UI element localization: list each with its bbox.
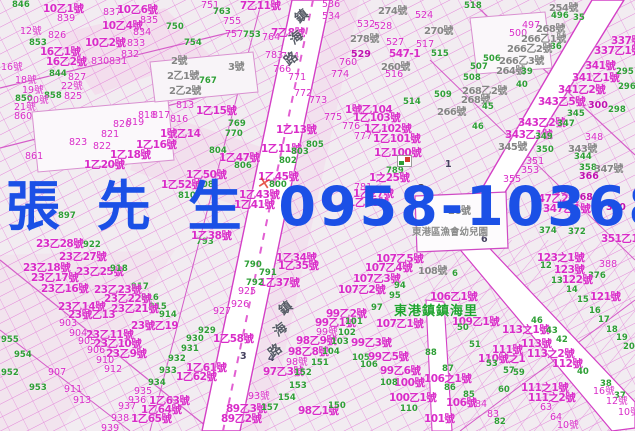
parcel-label: 536 — [322, 0, 340, 10]
parcel-label: 101號 — [424, 414, 454, 425]
village-label: 東港鎮鎮海里 — [394, 300, 478, 319]
parcel-label: 773 — [309, 96, 327, 106]
parcel-label: 113之1號 — [502, 325, 549, 336]
parcel-label: 341乙1號 — [572, 73, 619, 84]
parcel-label: 825 — [64, 92, 82, 102]
parcel-label: 1乙103號 — [353, 113, 400, 124]
parcel-label: 266乙2號 — [507, 45, 552, 55]
parcel-label: 2號 — [171, 57, 187, 67]
parcel-label: 1乙101號 — [373, 134, 420, 145]
parcel-label: 529 — [351, 50, 371, 60]
parcel-label: 345 — [567, 110, 585, 119]
parcel-label: 831 — [109, 57, 127, 67]
parcel-label: 3 — [240, 352, 247, 362]
parcel-label: 344 — [574, 153, 592, 162]
parcel-label: 341乙2號 — [558, 85, 605, 96]
parcel-label: 496 — [551, 12, 569, 21]
parcel-label: 59 — [513, 369, 525, 378]
parcel-label: 775 — [324, 113, 342, 123]
parcel-label: 754 — [184, 39, 202, 48]
parcel-label: 914 — [159, 311, 177, 320]
parcel-label: 771 — [288, 73, 306, 83]
parcel-label: 107乙2號 — [338, 285, 385, 296]
parcel-label: 42 — [556, 336, 568, 345]
parcel-label: 14 — [566, 286, 578, 295]
parcel-label: 296 — [618, 83, 635, 92]
parcel-label: 933 — [159, 367, 177, 376]
parcel-label: 10乙2號 — [85, 38, 125, 49]
parcel-label: 266號 — [437, 108, 466, 118]
parcel-label: 1乙62號 — [176, 372, 216, 383]
parcel-label: 6 — [452, 270, 458, 279]
parcel-label: 99乙3號 — [351, 338, 391, 349]
parcel-label: 757 — [225, 30, 243, 40]
parcel-label: 10乙6號 — [117, 5, 157, 16]
parcel-label: 939 — [101, 424, 119, 431]
parcel-label: 767 — [199, 77, 217, 86]
parcel-label: 99乙6號 — [380, 366, 420, 377]
parcel-label: 518 — [464, 2, 482, 11]
parcel-label: 907 — [48, 368, 66, 378]
parcel-label: 509 — [434, 91, 452, 100]
parcel-label: 844 — [49, 70, 67, 79]
parcel-label: 952 — [1, 369, 19, 378]
parcel-label: 93號 — [248, 392, 270, 402]
parcel-label: 337乙1號 — [594, 46, 635, 57]
parcel-label: 108 — [380, 379, 398, 388]
parcel-label: 122號 — [562, 275, 592, 286]
parcel-label: 300 — [588, 101, 608, 111]
parcel-label: 1號乙14 — [160, 129, 200, 140]
parcel-label: 157 — [261, 404, 279, 413]
parcel-label: 774 — [331, 70, 349, 80]
parcel-label: 89乙2號 — [221, 414, 261, 425]
parcel-label: 1乙20號 — [84, 160, 124, 171]
parcel-label: 108號 — [418, 267, 447, 277]
parcel-label: 20 — [623, 343, 635, 352]
parcel-label: 10號 — [618, 408, 635, 418]
parcel-label: 514 — [403, 98, 421, 107]
parcel-label: 770 — [225, 130, 243, 139]
parcel-label: 930 — [186, 335, 204, 344]
parcel-label: 1乙15號 — [196, 106, 236, 117]
parcel-label: 12號 — [606, 397, 628, 407]
parcel-label: 1乙58號 — [213, 334, 253, 345]
parcel-label: 341號 — [585, 61, 615, 72]
parcel-label: 104 — [322, 348, 340, 357]
parcel-label: 53 — [486, 360, 498, 369]
parcel-label: 111號 — [492, 345, 522, 356]
parcel-label: 107乙1號 — [376, 319, 423, 330]
parcel-label: 88 — [425, 349, 437, 358]
parcel-label: 816 — [170, 115, 188, 125]
parcel-label: 835 — [140, 16, 158, 26]
parcel-label: 922 — [83, 241, 101, 250]
parcel-label: 23乙27號 — [59, 252, 106, 263]
phone-overlay: 張 先 生 0958-103680 — [6, 180, 635, 234]
parcel-label: 823 — [69, 138, 87, 148]
parcel-label: 82 — [494, 418, 506, 427]
parcel-label: 764 — [262, 33, 280, 43]
parcel-label: 2乙2號 — [169, 87, 201, 97]
parcel-label: 270號 — [424, 27, 453, 37]
parcel-label: 97 — [371, 304, 383, 313]
parcel-label: 15 — [577, 296, 589, 305]
parcel-label: 17 — [598, 316, 610, 325]
parcel-label: 51 — [469, 341, 481, 350]
parcel-label: 84 — [475, 400, 487, 410]
parcel-label: 106 — [360, 361, 378, 370]
parcel-label: 821 — [101, 130, 119, 140]
parcel-label: 121號 — [590, 292, 620, 303]
parcel-label: 12 — [540, 262, 552, 271]
parcel-label: 911 — [64, 385, 82, 395]
parcel-label: 151 — [311, 359, 329, 368]
parcel-label: 350 — [536, 146, 554, 155]
parcel-label: 931 — [181, 345, 199, 354]
parcel-label: 298 — [608, 106, 626, 115]
parcel-label: 839 — [57, 14, 75, 24]
parcel-label: 349 — [535, 133, 553, 142]
parcel-label: 932 — [168, 355, 186, 364]
parcel-label: 12號 — [20, 27, 42, 37]
parcel-label: 150 — [328, 402, 346, 411]
parcel-label: 153 — [289, 382, 307, 391]
parcel-label: 813 — [176, 101, 194, 111]
parcel-label: 86 — [444, 384, 456, 393]
parcel-label: 1乙13號 — [276, 125, 316, 136]
parcel-label: 101 — [345, 318, 363, 327]
parcel-label: 152 — [294, 369, 312, 378]
parcel-label: 1乙47號 — [219, 153, 259, 164]
parcel-label: 45 — [482, 103, 494, 112]
parcel-label: 16乙2號 — [46, 57, 86, 68]
parcel-label: 274號 — [378, 7, 407, 17]
parcel-label: 110 — [400, 405, 418, 414]
parcel-label: 23號乙19 — [131, 321, 178, 332]
parcel-label: 547-1 — [389, 49, 420, 60]
parcel-label: 3號 — [228, 63, 244, 73]
parcel-label: 1乙65號 — [131, 414, 171, 425]
parcel-label: 927 — [213, 307, 231, 317]
parcel-label: 7乙11號 — [240, 1, 280, 12]
parcel-label: 2乙1號 — [167, 72, 199, 82]
parcel-label: 926 — [231, 300, 249, 310]
parcel-label: 23乙21號 — [111, 304, 158, 315]
parcel-label: 534 — [322, 12, 340, 22]
parcel-label: 278號 — [350, 35, 379, 45]
parcel-label: 802 — [279, 157, 297, 166]
parcel-label: 805 — [306, 141, 324, 150]
parcel-label: 822 — [93, 142, 111, 152]
parcel-label: 40 — [516, 81, 528, 90]
parcel-label: 527 — [386, 38, 404, 48]
parcel-label: 913 — [73, 396, 91, 406]
cadastral-map[interactable]: 84610乙1號83983710乙6號83510乙4號83412號82610乙2… — [0, 0, 635, 431]
parcel-label: 860 — [14, 112, 32, 122]
parcel-label: 507 — [470, 63, 488, 72]
parcel-label: 750 — [166, 23, 184, 32]
parcel-label: 953 — [29, 384, 47, 393]
parcel-label: 532 — [357, 20, 375, 30]
school-icon — [397, 155, 412, 167]
parcel-label: 345號 — [498, 143, 527, 153]
parcel-label: 60 — [498, 386, 510, 395]
parcel-label: 94 — [394, 282, 406, 291]
parcel-label: 40 — [577, 368, 589, 377]
parcel-label: 388 — [599, 260, 617, 270]
parcel-label: 912 — [104, 365, 122, 375]
parcel-label: 528 — [374, 22, 392, 32]
parcel-label: 955 — [1, 336, 19, 345]
parcel-label: 769 — [228, 120, 246, 129]
parcel-label: 343乙5號 — [538, 97, 585, 108]
parcel-label: 937 — [118, 402, 136, 412]
parcel-label: 347 — [557, 120, 575, 129]
parcel-label: 16號 — [1, 63, 23, 73]
parcel-label: 50 — [457, 324, 469, 333]
parcel-label: 516 — [385, 70, 403, 80]
parcel-label: 348 — [585, 133, 603, 143]
parcel-label: 46 — [472, 123, 484, 132]
parcel-label: 508 — [463, 74, 481, 83]
parcel-label: 39 — [521, 68, 533, 77]
parcel-label: 107乙4號 — [365, 263, 412, 274]
parcel-label: 23乙17號 — [31, 273, 78, 284]
parcel-label: 100號 — [394, 378, 424, 389]
parcel-label: 23乙16號 — [41, 284, 88, 295]
parcel-label: 524 — [415, 11, 433, 21]
parcel-label: 1 — [445, 160, 452, 170]
parcel-label: 826 — [48, 31, 66, 41]
parcel-label: 1乙35號 — [278, 261, 318, 272]
parcel-label: 861 — [25, 152, 43, 162]
parcel-label: 1乙37號 — [259, 278, 299, 289]
parcel-label: 846 — [12, 1, 30, 10]
parcel-label: 35 — [573, 14, 585, 23]
parcel-label: 755 — [223, 17, 241, 27]
parcel-label: 103 — [331, 338, 349, 347]
parcel-label: 295 — [616, 68, 634, 77]
parcel-label: 925 — [238, 287, 256, 297]
parcel-label: 753 — [243, 31, 261, 40]
parcel-label: 834 — [133, 28, 151, 38]
parcel-label: 100乙1號 — [389, 393, 436, 404]
parcel-label: 154 — [278, 394, 296, 403]
parcel-label: 833 — [127, 39, 145, 49]
parcel-label: 817 — [152, 111, 170, 121]
parcel-label: 515 — [431, 50, 449, 59]
parcel-label: 23乙28號 — [36, 239, 83, 250]
parcel-label: 10號 — [557, 421, 579, 431]
parcel-label: 830 — [91, 57, 109, 67]
parcel-label: 918 — [110, 265, 128, 274]
parcel-label: 954 — [14, 351, 32, 360]
parcel-label: 106號 — [446, 398, 476, 409]
